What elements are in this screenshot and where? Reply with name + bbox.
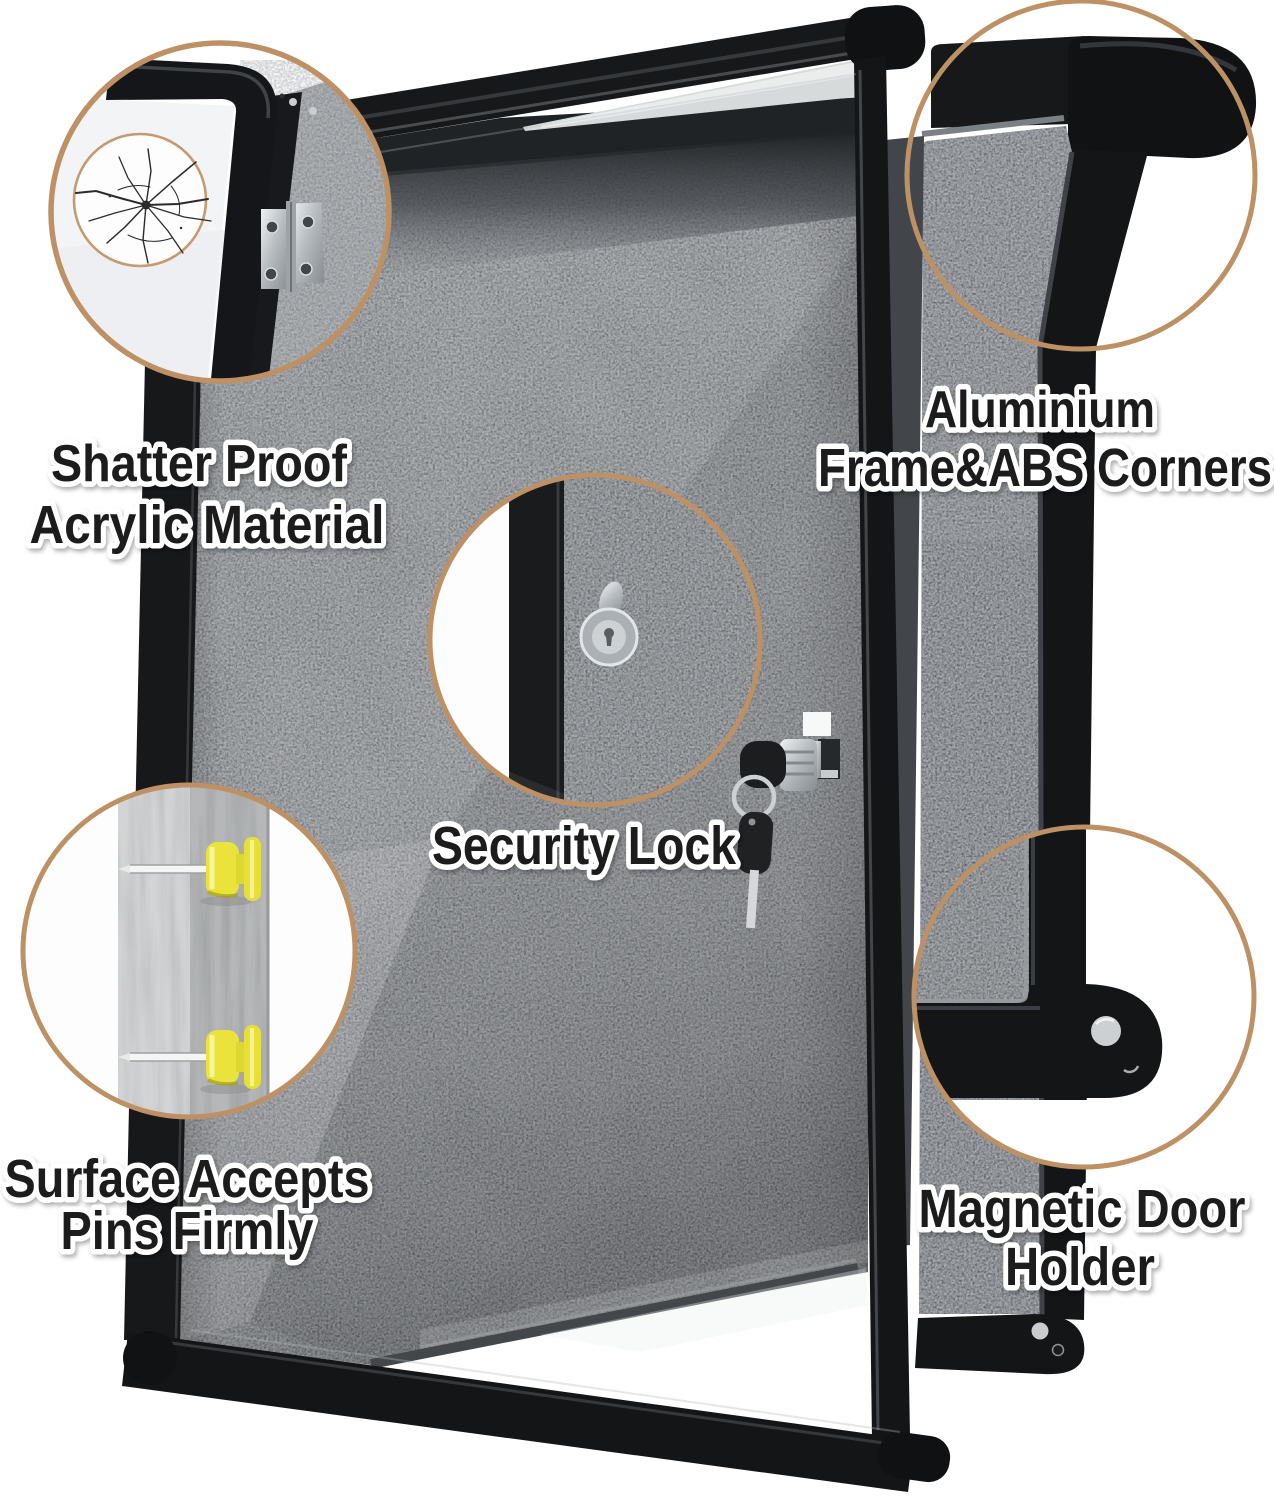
svg-text:Frame&ABS Corners: Frame&ABS Corners (818, 438, 1272, 498)
svg-text:Shatter Proof: Shatter Proof (51, 435, 348, 493)
svg-text:Surface Accepts: Surface Accepts (5, 1149, 370, 1209)
svg-text:Security Lock: Security Lock (432, 816, 737, 876)
svg-text:Magnetic Door: Magnetic Door (919, 1179, 1246, 1239)
svg-text:Aluminium: Aluminium (925, 381, 1155, 439)
svg-text:Pins Firmly: Pins Firmly (61, 1201, 314, 1261)
svg-text:Holder: Holder (1005, 1237, 1155, 1297)
svg-text:Acrylic Material: Acrylic Material (30, 495, 385, 555)
